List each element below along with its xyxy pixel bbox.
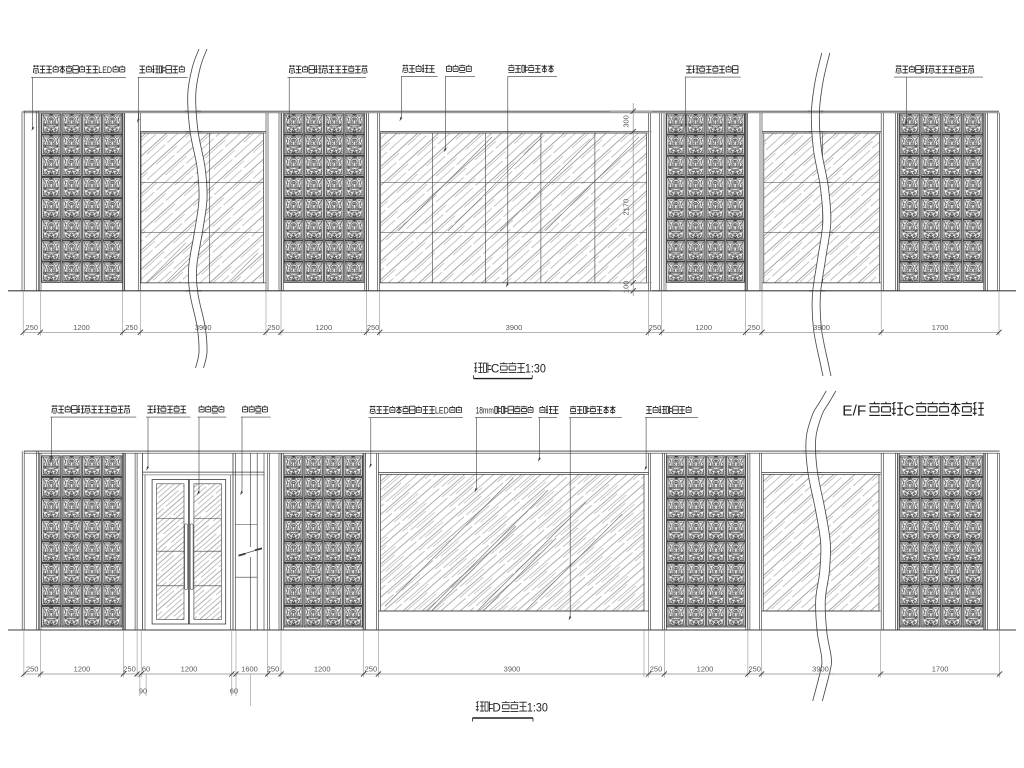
svg-text:250: 250 <box>365 665 378 674</box>
svg-text:1200: 1200 <box>73 323 90 332</box>
svg-text:1200: 1200 <box>181 665 198 674</box>
svg-text:18mm: 18mm <box>476 406 494 416</box>
svg-text:C: C <box>491 363 499 376</box>
svg-text:1:30: 1:30 <box>527 701 548 714</box>
svg-text:E/F: E/F <box>842 402 866 419</box>
svg-text:2170: 2170 <box>622 199 631 216</box>
svg-text:250: 250 <box>650 665 663 674</box>
svg-text:LED: LED <box>435 406 449 416</box>
svg-text:100: 100 <box>622 281 631 294</box>
svg-text:1200: 1200 <box>697 665 714 674</box>
svg-text:1200: 1200 <box>314 665 331 674</box>
svg-text:3900: 3900 <box>504 665 521 674</box>
svg-text:250: 250 <box>123 665 136 674</box>
svg-text:1200: 1200 <box>695 323 712 332</box>
svg-text:300: 300 <box>622 115 631 128</box>
svg-text:3900: 3900 <box>813 323 830 332</box>
svg-text:1600: 1600 <box>241 665 258 674</box>
svg-text:250: 250 <box>649 323 662 332</box>
svg-text:250: 250 <box>748 323 761 332</box>
svg-text:250: 250 <box>26 665 39 674</box>
svg-text:3900: 3900 <box>506 323 523 332</box>
svg-text:1700: 1700 <box>932 323 949 332</box>
svg-text:250: 250 <box>367 323 380 332</box>
svg-text:1200: 1200 <box>74 665 91 674</box>
svg-text:250: 250 <box>26 323 39 332</box>
svg-text:250: 250 <box>267 323 280 332</box>
svg-text:250: 250 <box>748 665 761 674</box>
svg-text:3900: 3900 <box>195 323 212 332</box>
svg-text:1:30: 1:30 <box>525 363 546 376</box>
svg-text:60: 60 <box>142 665 150 674</box>
svg-text:250: 250 <box>125 323 138 332</box>
svg-text:60: 60 <box>230 687 238 696</box>
svg-text:LED: LED <box>98 65 112 75</box>
svg-text:C: C <box>904 402 915 419</box>
svg-text:90: 90 <box>139 687 147 696</box>
svg-text:1700: 1700 <box>932 665 949 674</box>
svg-text:1200: 1200 <box>315 323 332 332</box>
svg-text:3900: 3900 <box>812 665 829 674</box>
svg-text:D: D <box>492 701 500 714</box>
svg-text:250: 250 <box>267 665 280 674</box>
